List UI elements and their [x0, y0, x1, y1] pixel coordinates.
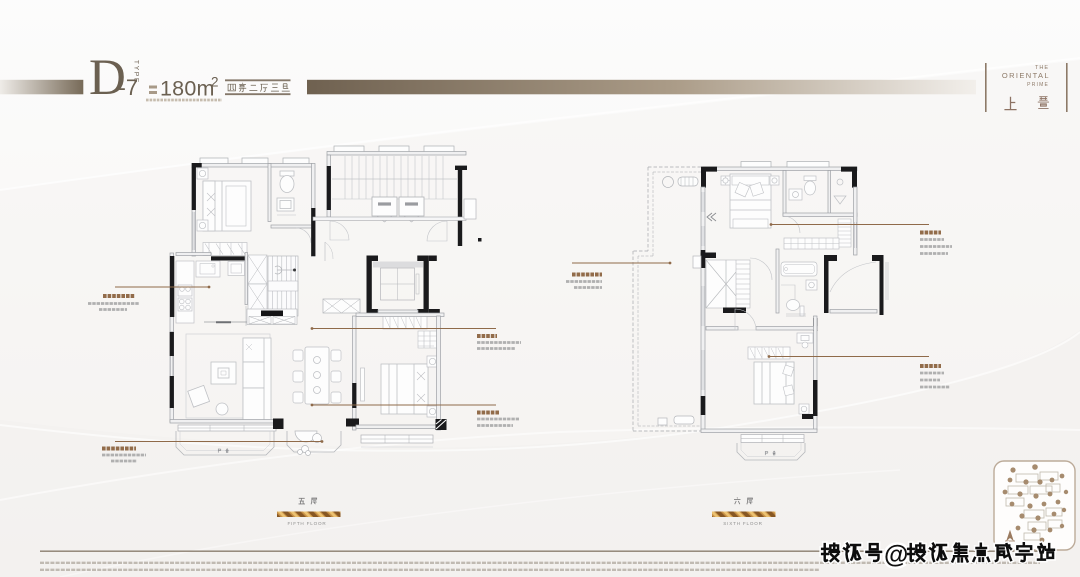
svg-text:PRIME: PRIME	[1027, 82, 1049, 88]
svg-text:FIFTH FLOOR: FIFTH FLOOR	[288, 521, 327, 526]
svg-text:SIXTH FLOOR: SIXTH FLOOR	[723, 521, 762, 526]
svg-text:ORIENTAL: ORIENTAL	[1002, 71, 1050, 80]
svg-text:-7: -7	[119, 75, 139, 100]
svg-text:180m: 180m	[160, 77, 215, 101]
svg-text:2: 2	[211, 75, 219, 90]
svg-text:@: @	[884, 541, 908, 569]
